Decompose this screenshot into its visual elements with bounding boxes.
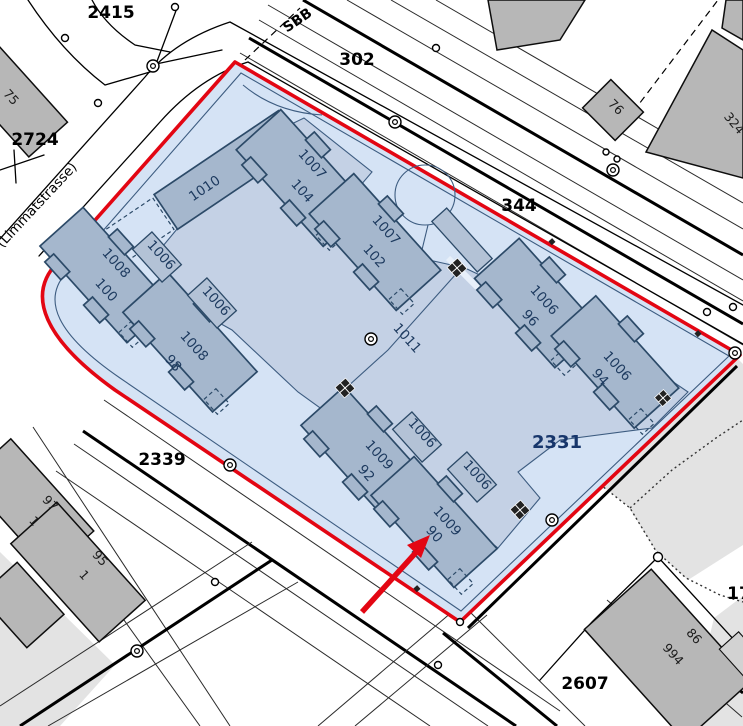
parcel-label-2331-selected: 2331 [532, 432, 582, 453]
parcel-label-2339: 2339 [138, 450, 185, 470]
survey-point-double [147, 60, 159, 72]
parcel-label-2724: 2724 [11, 130, 58, 150]
parcel-label-2415: 2415 [87, 3, 134, 23]
parcel-label-2607: 2607 [561, 674, 608, 694]
cadastral-map-viewport[interactable]: 2415 2724 302 344 2339 2607 17 2331 SBB … [0, 0, 743, 726]
cadastral-map[interactable]: 2415 2724 302 344 2339 2607 17 2331 SBB … [0, 0, 743, 726]
parcel-label-302: 302 [339, 50, 375, 70]
railway-label-sbb: SBB [280, 5, 315, 36]
parcel-label-344: 344 [501, 196, 537, 216]
parcel-label-17: 17 [727, 584, 743, 604]
